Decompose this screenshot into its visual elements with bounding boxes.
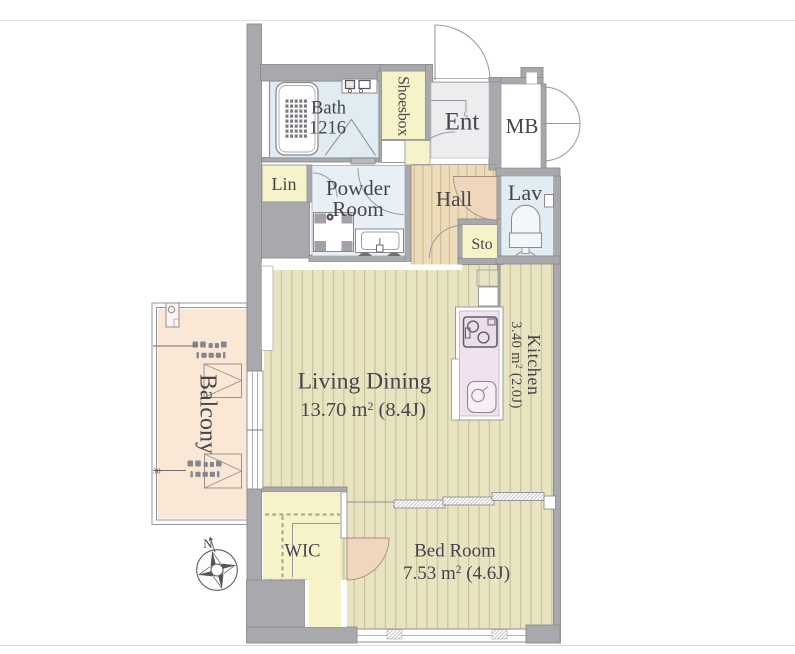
svg-text:Room: Room <box>332 197 383 221</box>
svg-text:Shoesbox: Shoesbox <box>395 76 412 136</box>
svg-text:Hall: Hall <box>436 187 472 211</box>
svg-text:Bath: Bath <box>311 99 346 119</box>
svg-text:N: N <box>203 536 213 551</box>
svg-text:Living Dining: Living Dining <box>298 369 432 395</box>
svg-text:Sto: Sto <box>471 236 492 253</box>
svg-text:Lin: Lin <box>272 174 297 194</box>
svg-text:WIC: WIC <box>285 542 321 562</box>
svg-text:Kitchen: Kitchen <box>524 334 544 395</box>
svg-text:Ent: Ent <box>445 109 480 136</box>
svg-text:Balcony: Balcony <box>195 374 221 454</box>
svg-text:13.70 m2 (8.4J): 13.70 m2 (8.4J) <box>300 399 426 421</box>
svg-text:Lav: Lav <box>508 180 542 205</box>
svg-text:30: 30 <box>153 467 161 476</box>
svg-text:1216: 1216 <box>309 119 346 139</box>
svg-text:MB: MB <box>506 114 539 138</box>
svg-text:Bed Room: Bed Room <box>414 541 496 562</box>
